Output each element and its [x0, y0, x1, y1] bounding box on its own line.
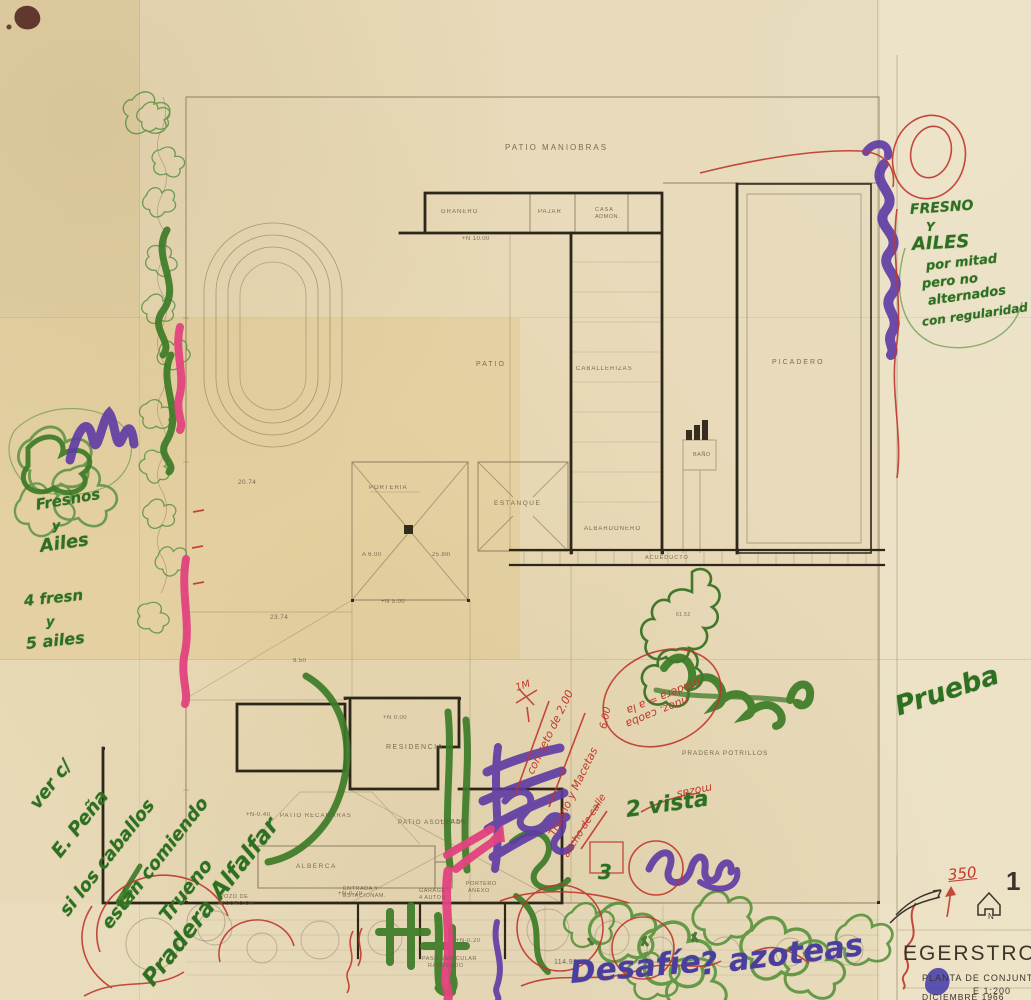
plan-label: ALBARDONERO	[584, 526, 641, 532]
elevation-mark: A 6.00	[362, 552, 381, 558]
plan-label: ADMON.	[595, 214, 620, 220]
plan-label: PATIO RECAMARAS	[280, 813, 352, 819]
green-marker-note: 3	[598, 862, 612, 882]
plan-label: GRANERO	[441, 209, 478, 215]
red-pen-note: 350	[947, 865, 977, 883]
project-title: EGERSTROM	[903, 942, 1031, 966]
elevation-mark: +N-0.50	[440, 819, 464, 825]
plan-label: PATIO	[476, 361, 506, 368]
plan-label: GARAGE	[419, 888, 446, 894]
plan-label: RESIDENCIA	[386, 744, 444, 751]
plan-label: BAÑO	[693, 452, 711, 458]
elevation-mark: 25.8m	[432, 552, 451, 558]
elevation-mark: 9.50	[293, 658, 306, 664]
elevation-mark: +N 10.00	[462, 236, 490, 242]
plan-label: ACUEDUCTO	[645, 555, 689, 561]
plan-label: CASA	[595, 207, 614, 213]
black-pen-marks	[7, 6, 942, 923]
plan-label: 4 AUTOS	[419, 895, 446, 901]
plan-label: CABALLERIZAS	[576, 366, 633, 372]
plan-label: RAMPEADO	[428, 963, 463, 969]
plan-linework	[126, 55, 1031, 1000]
plan-label: PASO VEHICULAR	[422, 956, 477, 962]
drawing-title: PLANTA DE CONJUNTO	[922, 973, 1031, 983]
elevation-mark: +N-0.20	[338, 891, 362, 897]
elevation-mark: +N-0.20	[456, 938, 480, 944]
plan-label: PRADERA POTRILLOS	[682, 750, 768, 757]
elevation-mark: 20.74	[238, 479, 256, 486]
plan-label: ALBERCA	[296, 863, 337, 870]
elevation-mark: +N 5.00	[381, 599, 405, 605]
drawing-sheet: PATIO MANIOBRASGRANEROPAJARCASAADMON.PAT…	[0, 0, 1031, 1000]
shrub-scribbles	[7, 92, 1022, 638]
plan-label: PORTERIA	[369, 485, 408, 491]
red-pen-marks	[82, 108, 974, 996]
sheet-number: 1	[1006, 866, 1020, 897]
plan-label: ESTANQUE	[494, 500, 541, 507]
green-marker-note: y	[51, 519, 61, 533]
plan-label: PAJAR	[538, 209, 562, 215]
plan-label: PICADERO	[772, 359, 825, 366]
green-marker-note: y	[46, 616, 54, 629]
drawing-date: DICIEMBRE 1966	[922, 992, 1005, 1000]
plan-label: PATIO MANIOBRAS	[505, 143, 608, 152]
elevation-mark: 23.74	[270, 614, 288, 621]
elevation-mark: +N 0.00	[383, 715, 407, 721]
plan-label: PORTERO	[466, 881, 497, 887]
north-arrow-label: N	[988, 912, 994, 921]
green-marker-note: FRESNO	[910, 199, 974, 217]
green-marker-note: AILES	[912, 233, 970, 254]
green-marker-note: Y	[926, 221, 935, 233]
plan-label: ANEXO	[468, 888, 490, 894]
elevation-mark: 61.52	[676, 612, 691, 618]
